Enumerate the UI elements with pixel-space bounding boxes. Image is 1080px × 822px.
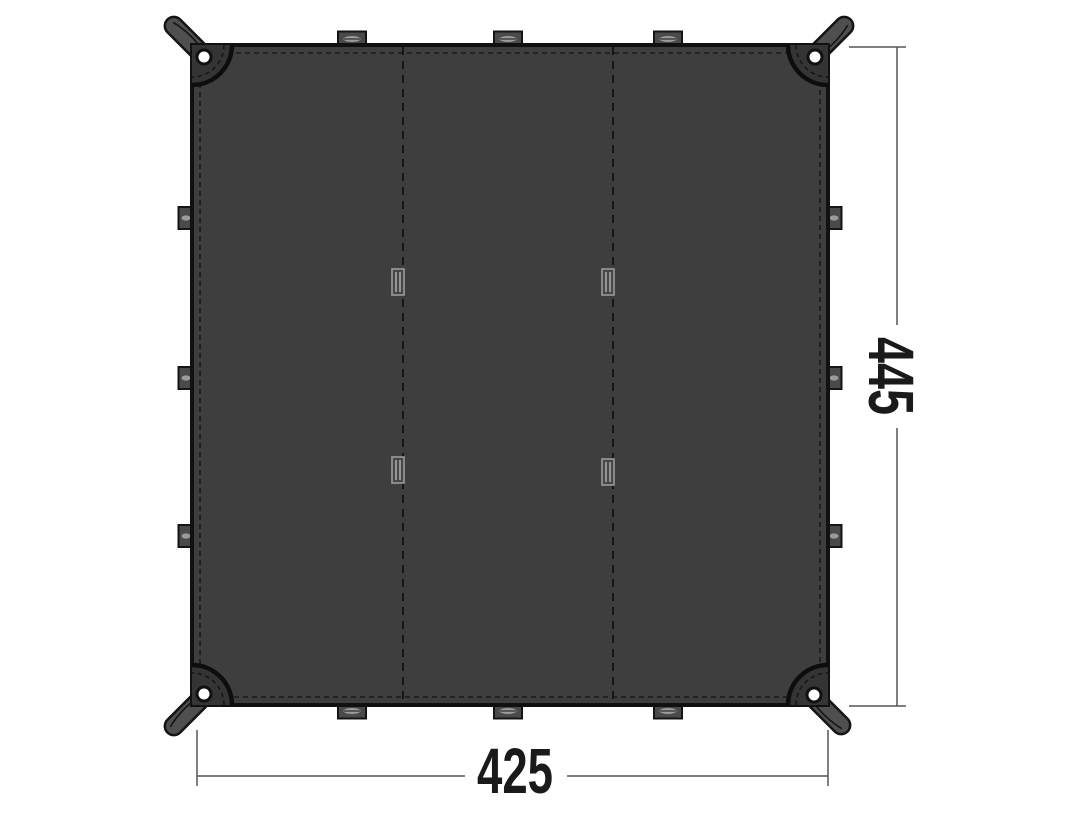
grommet-bottom-right [807,688,821,702]
width-dimension-label: 425 [477,735,553,807]
seam-loop-left-upper [392,269,404,295]
grommet-top-right [808,50,822,64]
grommet-top-left [197,50,211,64]
seam-loop-left-lower [392,457,404,483]
tarp-fabric [192,45,828,705]
seam-loop-right-lower [602,459,614,485]
diagram-canvas: 445 425 [0,0,1080,822]
height-dimension-label: 445 [855,337,927,415]
width-dimension: 425 [197,730,828,807]
grommet-bottom-left [197,687,211,701]
height-dimension: 445 [849,47,927,706]
tarp-diagram: 445 425 [0,0,1080,822]
seam-loop-right-upper [602,269,614,295]
